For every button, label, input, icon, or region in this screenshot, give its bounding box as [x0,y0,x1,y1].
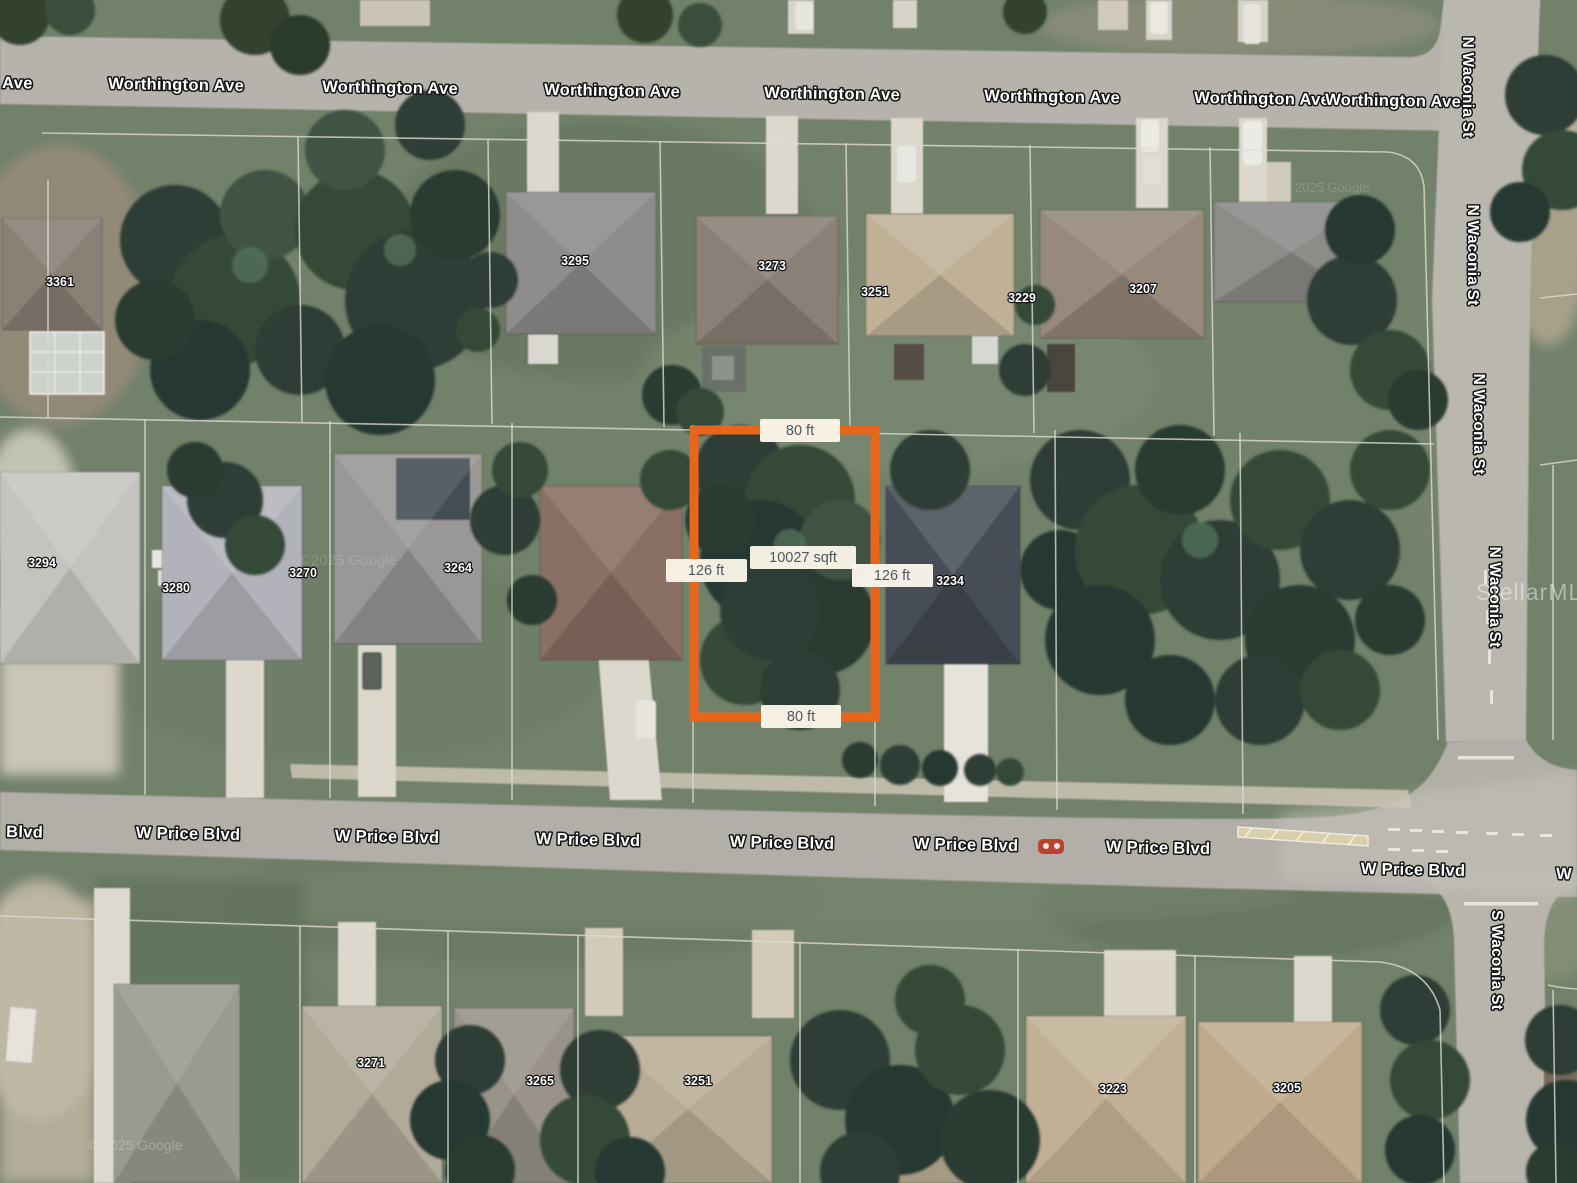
house-number-3223: 3223 [1099,1082,1127,1096]
house-number-3207: 3207 [1129,282,1157,296]
street-label-worthington-4: Worthington Ave [764,84,900,104]
dimension-chip-left: 126 ft [666,559,747,582]
street-label-n-waconia-1: N Waconia St [1459,37,1476,138]
street-label-n-waconia-2: N Waconia St [1464,205,1481,306]
street-label-n-waconia-3: N Waconia St [1470,374,1487,475]
parcel-area-label: 10027 sqft [769,550,837,566]
house-number-3234: 3234 [936,574,964,588]
dimension-chip-right: 126 ft [852,564,933,587]
street-label-price-7: W Price Blvd [1361,860,1466,880]
street-label-worthington-partial: Ave [2,74,33,93]
house-number-3295: 3295 [561,254,589,268]
street-label-worthington-7: Worthington Ave [1325,91,1461,111]
house-3223 [1026,1016,1186,1183]
house-3270 [334,454,482,644]
house-3294 [0,472,140,664]
pool-cage [30,332,104,394]
house-number-3205: 3205 [1273,1081,1301,1095]
street-label-s-waconia: S Waconia St [1488,910,1505,1010]
street-label-price-partial-left: Blvd [6,823,43,842]
dimension-chip-bottom: 80 ft [761,705,841,728]
house-number-3229: 3229 [1008,291,1036,305]
street-label-price-1: W Price Blvd [136,824,241,844]
street-label-price-2: W Price Blvd [335,827,440,847]
street-label-price-partial-right: W [1556,865,1572,883]
house-number-3280: 3280 [162,581,190,595]
stellar-mls-watermark: StellarMLS [1476,579,1577,605]
dimension-right-label: 126 ft [874,568,910,584]
house-number-3264: 3264 [444,561,472,575]
house-number-3271: 3271 [357,1056,385,1070]
house-number-3251-top: 3251 [861,285,889,299]
map-canvas[interactable]: 80 ft 80 ft 126 ft 126 ft 10027 sqft 336… [0,0,1577,1183]
satellite-map[interactable]: 80 ft 80 ft 126 ft 126 ft 10027 sqft 336… [0,0,1577,1183]
house-number-3273: 3273 [758,259,786,273]
dimension-bottom-label: 80 ft [787,709,815,725]
street-label-price-3: W Price Blvd [536,830,641,850]
dimension-top-label: 80 ft [786,423,814,439]
street-label-worthington-2: Worthington Ave [322,78,458,98]
dimension-chip-top: 80 ft [760,419,840,442]
street-label-price-4: W Price Blvd [730,833,835,853]
house-3251-top [866,214,1014,336]
google-watermark-middle: ©2025 Google [300,552,397,569]
street-label-price-5: W Price Blvd [914,835,1019,855]
red-car [1038,839,1064,854]
house-3205 [1198,1022,1362,1183]
house-number-3251-bottom: 3251 [684,1074,712,1088]
house-3264 [540,486,682,660]
google-watermark-lower: © 2025 Google [88,1137,183,1153]
street-label-worthington-3: Worthington Ave [544,81,680,101]
google-watermark-upper: 2025 Google [1295,180,1369,195]
street-label-worthington-1: Worthington Ave [108,75,244,95]
house-bottom-left [114,984,240,1183]
house-3361 [2,218,102,330]
house-number-3294: 3294 [28,556,56,570]
area-chip: 10027 sqft [750,546,856,569]
house-number-3361: 3361 [46,275,74,289]
street-label-worthington-6: Worthington Ave [1194,89,1330,109]
dimension-left-label: 126 ft [688,563,724,579]
house-3229 [1040,210,1204,338]
street-label-worthington-5: Worthington Ave [984,87,1120,107]
house-3273 [696,216,838,344]
house-number-3265: 3265 [526,1074,554,1088]
street-label-price-6: W Price Blvd [1106,838,1211,858]
